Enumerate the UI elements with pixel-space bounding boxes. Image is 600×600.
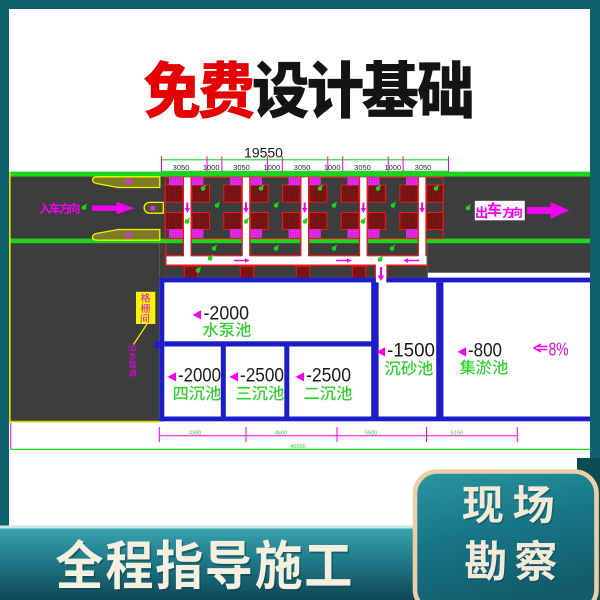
svg-text:5150: 5150 — [451, 430, 463, 436]
svg-text:-800: -800 — [468, 341, 502, 362]
svg-text:19550: 19550 — [244, 145, 283, 161]
svg-text:8%: 8% — [549, 340, 569, 360]
svg-text:4600: 4600 — [275, 430, 287, 436]
svg-text:-2500: -2500 — [306, 366, 351, 387]
svg-text:3050: 3050 — [233, 163, 250, 172]
svg-text:3050: 3050 — [354, 163, 371, 172]
svg-text:1000: 1000 — [384, 163, 401, 172]
svg-text:1000: 1000 — [263, 163, 280, 172]
svg-text:5500: 5500 — [365, 430, 377, 436]
svg-text:3050: 3050 — [294, 163, 311, 172]
svg-text:1000: 1000 — [324, 163, 341, 172]
svg-text:-2000: -2000 — [178, 366, 221, 387]
svg-text:46000: 46000 — [290, 444, 305, 450]
svg-text:1000: 1000 — [203, 163, 220, 172]
svg-text:3050: 3050 — [415, 163, 432, 172]
svg-text:4300: 4300 — [189, 430, 201, 436]
svg-text:-1500: -1500 — [387, 341, 435, 362]
svg-text:-2000: -2000 — [204, 304, 250, 325]
svg-text:3050: 3050 — [173, 163, 190, 172]
svg-text:-2500: -2500 — [240, 366, 284, 387]
